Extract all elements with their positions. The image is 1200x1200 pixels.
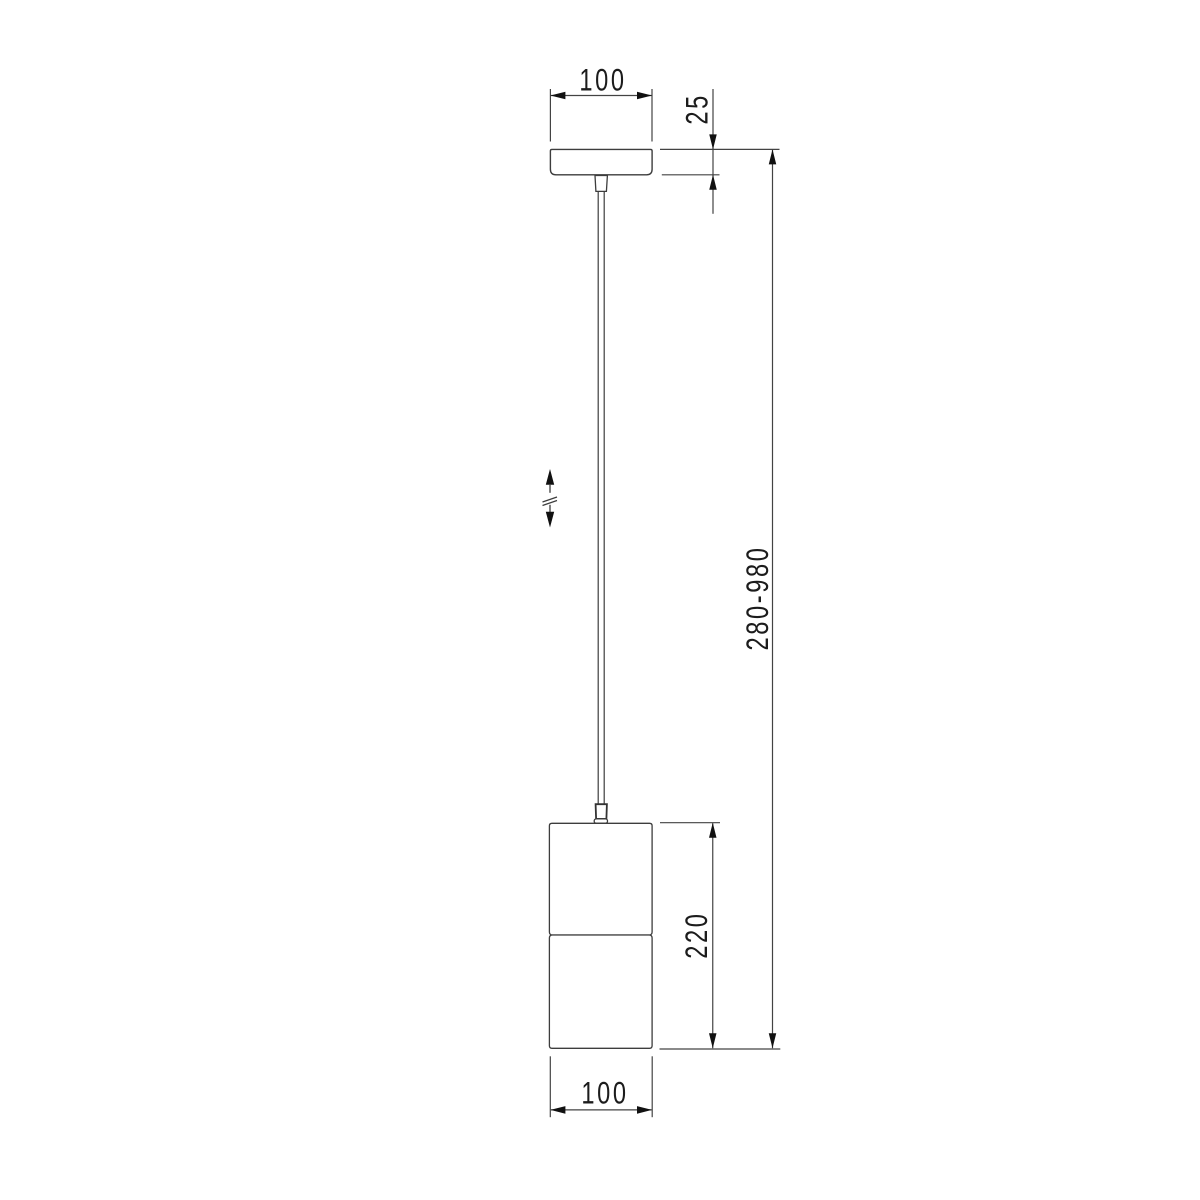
svg-text:25: 25 [679,93,714,125]
svg-text:100: 100 [579,62,626,97]
svg-text:280-980: 280-980 [740,545,775,650]
svg-text:100: 100 [581,1075,628,1110]
svg-text:220: 220 [679,911,714,958]
